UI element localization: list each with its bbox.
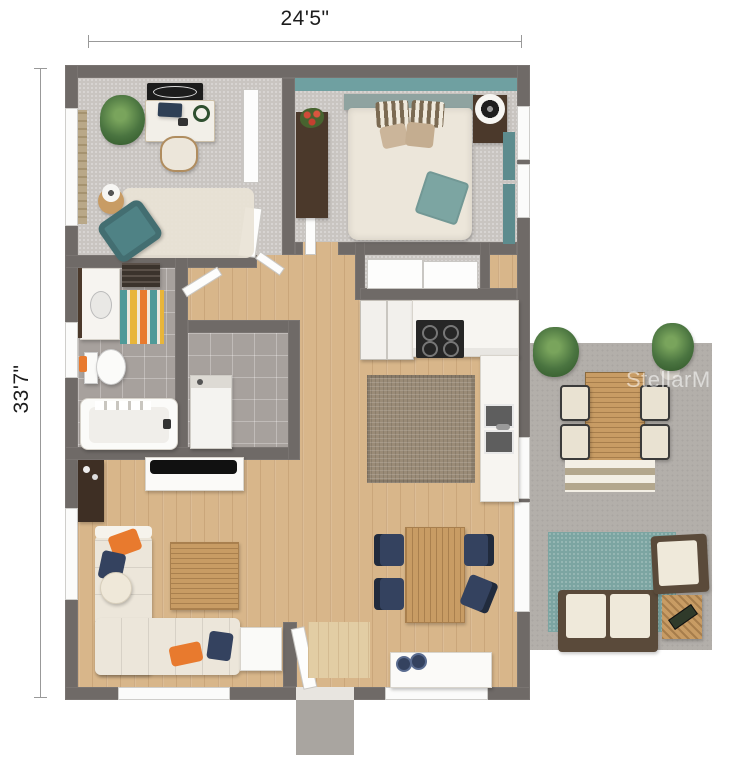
living-window-bottom (118, 687, 230, 700)
dining-table (405, 527, 465, 623)
dining-window-bottom (385, 687, 488, 700)
kitchen-rug (367, 375, 475, 483)
wall-laundry-north (188, 320, 300, 333)
desk-wreath (193, 105, 210, 122)
width-dimension-line (88, 41, 522, 42)
outdoor-sofa (558, 590, 658, 652)
front-stoop (296, 700, 354, 755)
height-dimension-label: 33'7" (10, 343, 34, 435)
sink-basin-2 (484, 430, 514, 454)
shelf-decor-2 (92, 474, 98, 480)
vanity-side-panel (78, 268, 82, 338)
outdoor-chair-1 (560, 385, 590, 421)
burner-3 (422, 341, 438, 357)
side-table-tray (668, 604, 698, 630)
outdoor-chair-4 (640, 424, 670, 460)
wall-art-pattern (153, 86, 197, 98)
height-dimension-line (40, 68, 41, 698)
washer (190, 375, 232, 449)
bathtub-faucet (163, 419, 171, 429)
table-lamp (102, 184, 120, 202)
outdoor-chair-2 (560, 424, 590, 460)
dining-chair-1 (374, 534, 404, 566)
burner-1 (422, 325, 438, 341)
ottoman (100, 572, 132, 604)
outdoor-striped-rug (565, 460, 655, 492)
vanity (80, 268, 120, 340)
outdoor-armchair (651, 534, 710, 595)
console-bowl-2 (410, 653, 427, 670)
washer-knob (197, 379, 203, 385)
bathroom-rug (120, 290, 164, 344)
bedroom-window-1 (517, 106, 530, 160)
desk-chair (160, 136, 198, 172)
wall-top (65, 65, 530, 78)
bathtub (80, 398, 178, 450)
bedroom-door-leaf (306, 212, 315, 254)
wall-art (147, 83, 203, 101)
vanity-sink (90, 291, 112, 319)
bathroom-window (65, 322, 78, 378)
height-dim-tick-bottom (34, 697, 47, 698)
bed-pillow-tan-2 (405, 122, 435, 149)
outdoor-sofa-cushion-1 (566, 594, 606, 638)
bedroom-window-2 (517, 164, 530, 218)
wall-office-bedroom (282, 78, 295, 255)
bathtub-basin (89, 407, 169, 443)
office-closet-panel-1 (244, 90, 258, 182)
bathroom-orange-accent (79, 356, 87, 372)
watermark: StellarMLS (626, 367, 733, 393)
height-dim-tick-top (34, 68, 47, 69)
fridge (360, 300, 414, 360)
outdoor-armchair-cushion (657, 540, 699, 586)
dining-chair-3 (464, 534, 494, 566)
outdoor-side-table (662, 595, 702, 639)
closet-slider-2 (424, 262, 477, 288)
front-door-threshold (296, 687, 354, 700)
bathtub-towels (95, 401, 151, 410)
wall-laundry-east (288, 320, 300, 460)
patio-door (514, 502, 530, 612)
bedroom-accent-wall (295, 78, 517, 91)
width-dim-tick-right (521, 35, 522, 48)
office-window (65, 108, 78, 226)
wall-kitchen-north (360, 288, 517, 300)
burner-2 (443, 325, 459, 341)
bedroom-curtain-2 (503, 184, 515, 244)
sofa-pillow-navy-2 (206, 630, 234, 661)
living-window-left (65, 508, 78, 600)
dining-chair-2 (374, 578, 404, 610)
stove (416, 320, 464, 358)
door-mat (308, 622, 370, 678)
shelf-decor-1 (83, 466, 90, 473)
closet-slider-1 (368, 260, 422, 288)
width-dim-tick-left (88, 35, 89, 48)
wall-bedroom-south-a (295, 242, 303, 255)
floor-plan: 24'5" 33'7" (0, 0, 733, 768)
living-shelf (78, 460, 104, 522)
bedroom-curtain-1 (503, 132, 515, 180)
bathroom-wall-shelf (122, 263, 160, 287)
laptop (158, 102, 183, 117)
sink-faucet (496, 424, 510, 430)
burner-4 (443, 341, 459, 357)
width-dimension-label: 24'5" (88, 7, 522, 31)
desk-item (178, 118, 188, 126)
toilet-bowl (96, 349, 126, 385)
outdoor-sofa-cushion-2 (610, 594, 650, 638)
nightstand-fan (475, 94, 505, 124)
tv (150, 460, 237, 474)
office-curtain (78, 110, 87, 224)
end-table (240, 627, 282, 671)
coffee-table (170, 542, 239, 610)
